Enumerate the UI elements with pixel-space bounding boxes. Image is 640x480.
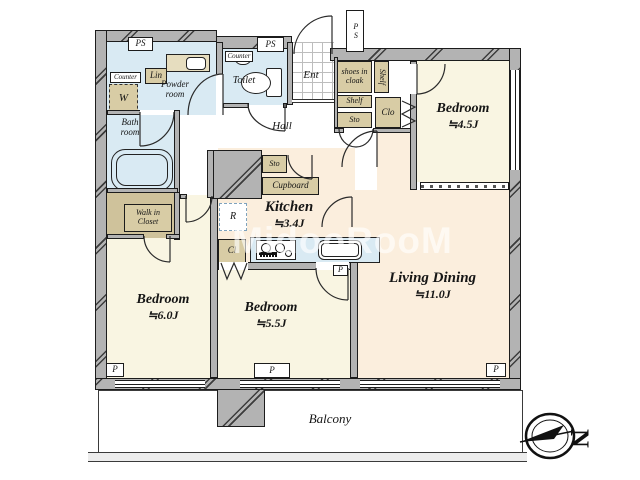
shaft-ps-mid: PS xyxy=(257,37,284,52)
kitchen-name: Kitchen xyxy=(250,199,328,215)
wic-door-arc xyxy=(144,236,170,262)
stove-burner-3 xyxy=(285,250,292,257)
hall-label: Hall xyxy=(260,121,304,133)
wall-corridor-right xyxy=(207,150,214,198)
pillar-p-label: P xyxy=(269,366,275,376)
outer-wall-top-left xyxy=(95,30,217,42)
sto-entry-box: Sto xyxy=(337,112,372,128)
kitchen-sink-inner xyxy=(321,243,359,257)
bedroom45-door-opening xyxy=(410,64,417,94)
pillar-p-label: P xyxy=(112,365,118,375)
sto-entry-double-doors xyxy=(339,129,373,147)
counter-powder-label: Counter xyxy=(114,74,137,82)
clo-box: Clo xyxy=(375,97,401,128)
balcony-label: Balcony xyxy=(290,412,370,426)
window-living xyxy=(360,380,500,388)
shaft-ps-label: PS xyxy=(136,39,146,49)
bathtub xyxy=(111,149,173,191)
powder-room-label: Powder room xyxy=(150,80,200,99)
pillar-p-counter: P xyxy=(333,265,348,276)
wall-wic-top xyxy=(107,188,178,193)
compass: N xyxy=(518,406,602,468)
bedroom-60-area: ≒6.0J xyxy=(118,309,208,322)
shelf-vertical-box: Shelf xyxy=(374,61,389,93)
shaft-ps-left: PS xyxy=(128,37,153,51)
kitchen-area: ≒3.4J xyxy=(250,217,328,230)
bedroom-45-area: ≒4.5J xyxy=(423,118,503,131)
outer-wall-left xyxy=(95,30,107,390)
entrance-step xyxy=(292,99,334,103)
sto-kitchen-label: Sto xyxy=(269,160,279,169)
bathtub-inner xyxy=(116,154,168,186)
window-bedroom45 xyxy=(510,70,520,170)
wall-bath-right xyxy=(174,110,180,195)
shoes-in-cloak-box: shoes in cloak xyxy=(337,61,372,93)
stove-grill xyxy=(259,252,277,257)
walk-in-closet-label: Walk in Closet xyxy=(136,209,160,226)
cl-label: Cl xyxy=(228,246,237,256)
bedroom-55-name: Bedroom xyxy=(226,300,316,315)
shelf-vertical-label: Shelf xyxy=(377,69,386,85)
counter-toilet-label: Counter xyxy=(228,53,251,61)
vanity-basin xyxy=(186,57,206,70)
counter-powder-box: Counter xyxy=(110,72,141,83)
kitchen-sink xyxy=(318,240,362,260)
bedroom60-door-arc xyxy=(186,196,212,222)
living-dining-area: ≒11.0J xyxy=(380,288,485,301)
bedroom-45-name: Bedroom xyxy=(423,101,503,116)
clo-label: Clo xyxy=(381,108,394,118)
compass-north-letter: N xyxy=(565,429,594,448)
ent-label: Ent xyxy=(294,70,328,82)
cupboard-box: Cupboard xyxy=(262,177,319,195)
floor-plan: Balcony Counter xyxy=(0,0,640,480)
wall-bedroom55-living xyxy=(350,262,358,378)
pillar-p-bedroom55: P xyxy=(254,363,290,378)
pipe-space-block xyxy=(213,150,262,199)
cupboard-label: Cupboard xyxy=(272,181,308,191)
shaft-ps-label: PS xyxy=(266,40,276,50)
shoes-in-cloak-label: shoes in cloak xyxy=(342,68,368,85)
refrigerator-label: R xyxy=(230,212,236,223)
entrance-door-arc xyxy=(294,14,332,54)
wall-wic-right xyxy=(174,192,180,240)
wall-ent-cloak xyxy=(334,57,338,128)
clo-bifold-door xyxy=(402,100,415,128)
bedroom-55-area: ≒5.5J xyxy=(226,317,316,330)
pillar-p-label: P xyxy=(338,266,343,275)
window-bedroom55 xyxy=(240,380,340,388)
pillar-p-living: P xyxy=(486,363,506,377)
wall-toilet-ent xyxy=(287,42,293,105)
walk-in-closet-box: Walk in Closet xyxy=(124,204,172,232)
bedroom-60-name: Bedroom xyxy=(118,292,208,307)
sto-entry-label: Sto xyxy=(349,116,359,125)
window-bedroom60 xyxy=(115,380,205,388)
wall-toilet-bottom-l xyxy=(223,103,249,108)
bedroom45-door-arc xyxy=(417,64,445,94)
refrigerator-box: R xyxy=(219,203,247,231)
cl-box: Cl xyxy=(218,239,246,263)
shaft-ps-vertical: PS xyxy=(346,10,364,52)
balcony-railing xyxy=(88,452,527,462)
shelf-box: Shelf xyxy=(337,95,372,108)
pillar-p-label: P xyxy=(493,365,499,375)
living-dining-name: Living Dining xyxy=(380,270,485,286)
sto-kitchen-box: Sto xyxy=(262,155,287,173)
pillar-p-bedroom60: P xyxy=(106,363,124,377)
sliding-partition-bedroom45 xyxy=(420,182,509,190)
wall-bedroom60-55-divider xyxy=(210,198,218,378)
counter-toilet-box: Counter xyxy=(225,51,253,62)
stove xyxy=(256,240,296,260)
wall-wic-bottom-l xyxy=(107,234,144,239)
toilet-label: Toilet xyxy=(224,76,264,87)
bath-room-label: Bath room xyxy=(108,118,152,137)
shaft-ps-vertical-label: PS xyxy=(351,22,360,40)
cl-bifold-door xyxy=(220,263,248,279)
shelf-label: Shelf xyxy=(347,97,363,106)
washing-machine-label: W xyxy=(119,93,128,105)
sto-kitchen-door-arc xyxy=(288,155,312,179)
